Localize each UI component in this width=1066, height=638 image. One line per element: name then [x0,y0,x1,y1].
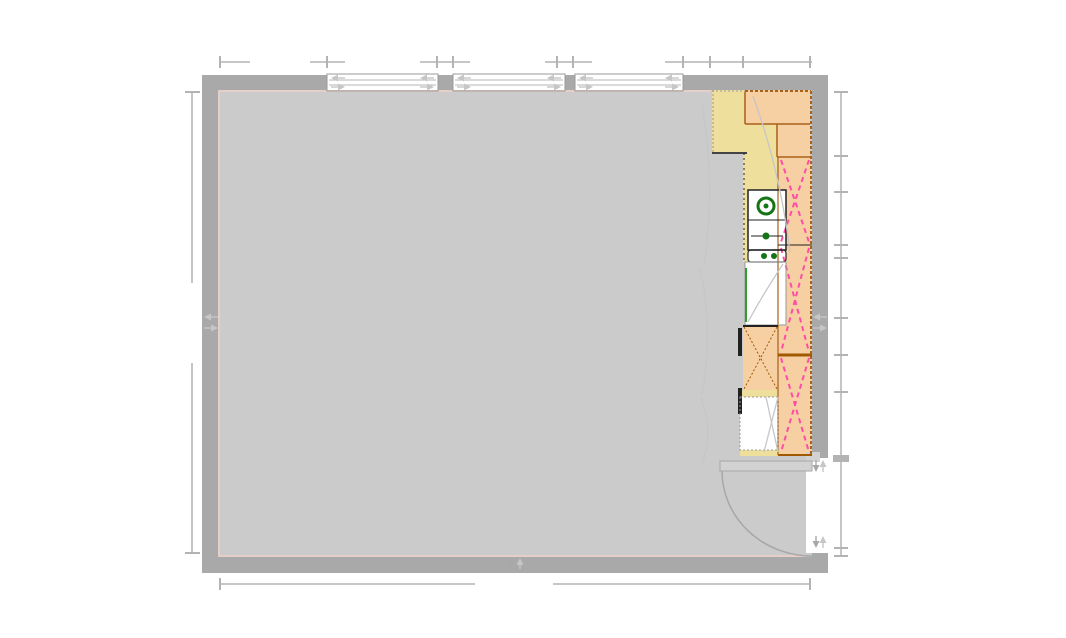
filler-panel-2 [738,388,742,414]
base-cabinet-b-bottom-strip [740,450,778,456]
wall-right-upper [812,90,828,458]
base-cabinet-b[interactable] [740,397,778,450]
wall-cabinet-b[interactable] [777,124,810,157]
wall-cabinet-a[interactable] [745,90,810,124]
base-cabinet-b-top-strip [740,390,778,397]
corner-cabinet[interactable] [743,325,778,390]
hob-control-panel[interactable] [748,250,786,262]
base-cabinet-a[interactable] [745,262,786,325]
wall-left [202,90,218,573]
wall-right-lower [812,553,828,573]
countertop-corner[interactable] [712,90,745,153]
countertop-step[interactable] [745,124,777,153]
door-leaf[interactable] [720,461,812,471]
window-1[interactable] [327,74,438,91]
window-3[interactable] [575,74,683,91]
floor [218,90,812,557]
countertop-run[interactable] [743,153,777,190]
plan-canvas [0,0,1066,638]
filler-panel-1 [738,328,742,356]
window-2[interactable] [453,74,565,91]
tall-cabinet-3[interactable] [778,355,812,456]
hob[interactable] [748,190,786,250]
dim-tick-wide [833,455,849,462]
wall-bottom [202,557,828,573]
door-opening[interactable] [806,458,828,553]
